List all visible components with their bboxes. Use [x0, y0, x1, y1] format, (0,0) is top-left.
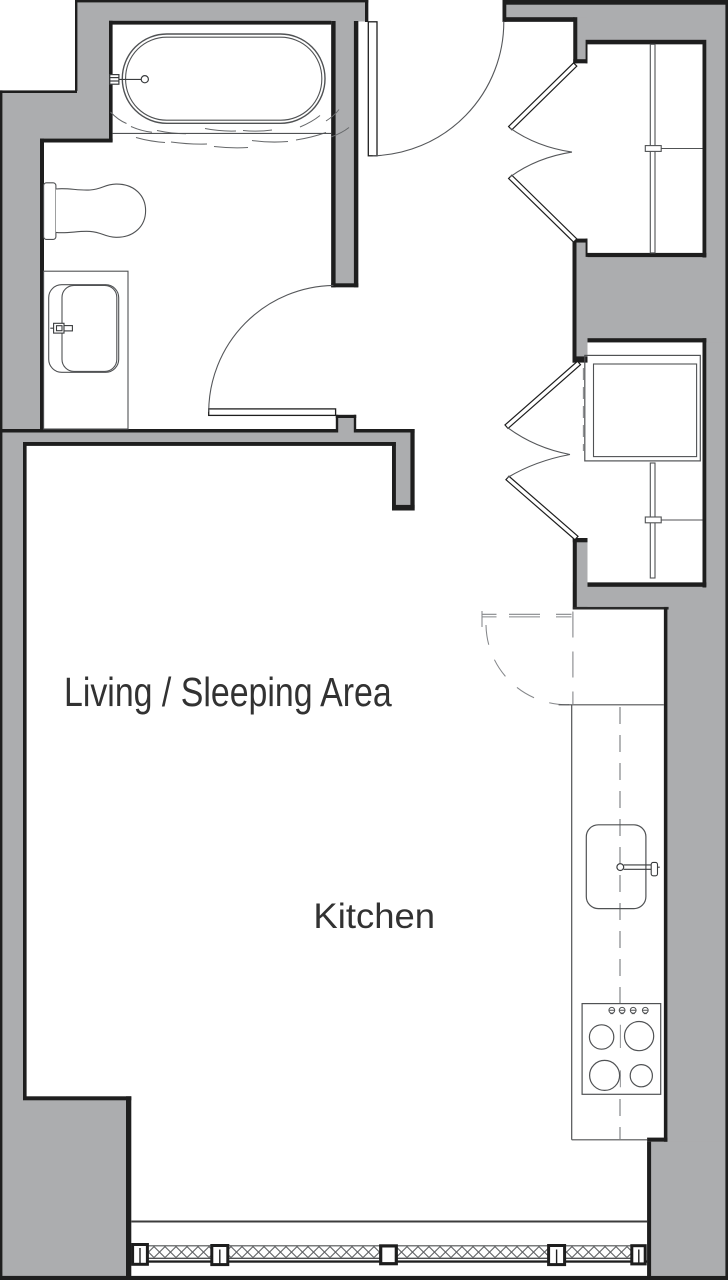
svg-text:Living / Sleeping Area: Living / Sleeping Area: [64, 669, 392, 715]
svg-text:Kitchen: Kitchen: [313, 897, 435, 936]
